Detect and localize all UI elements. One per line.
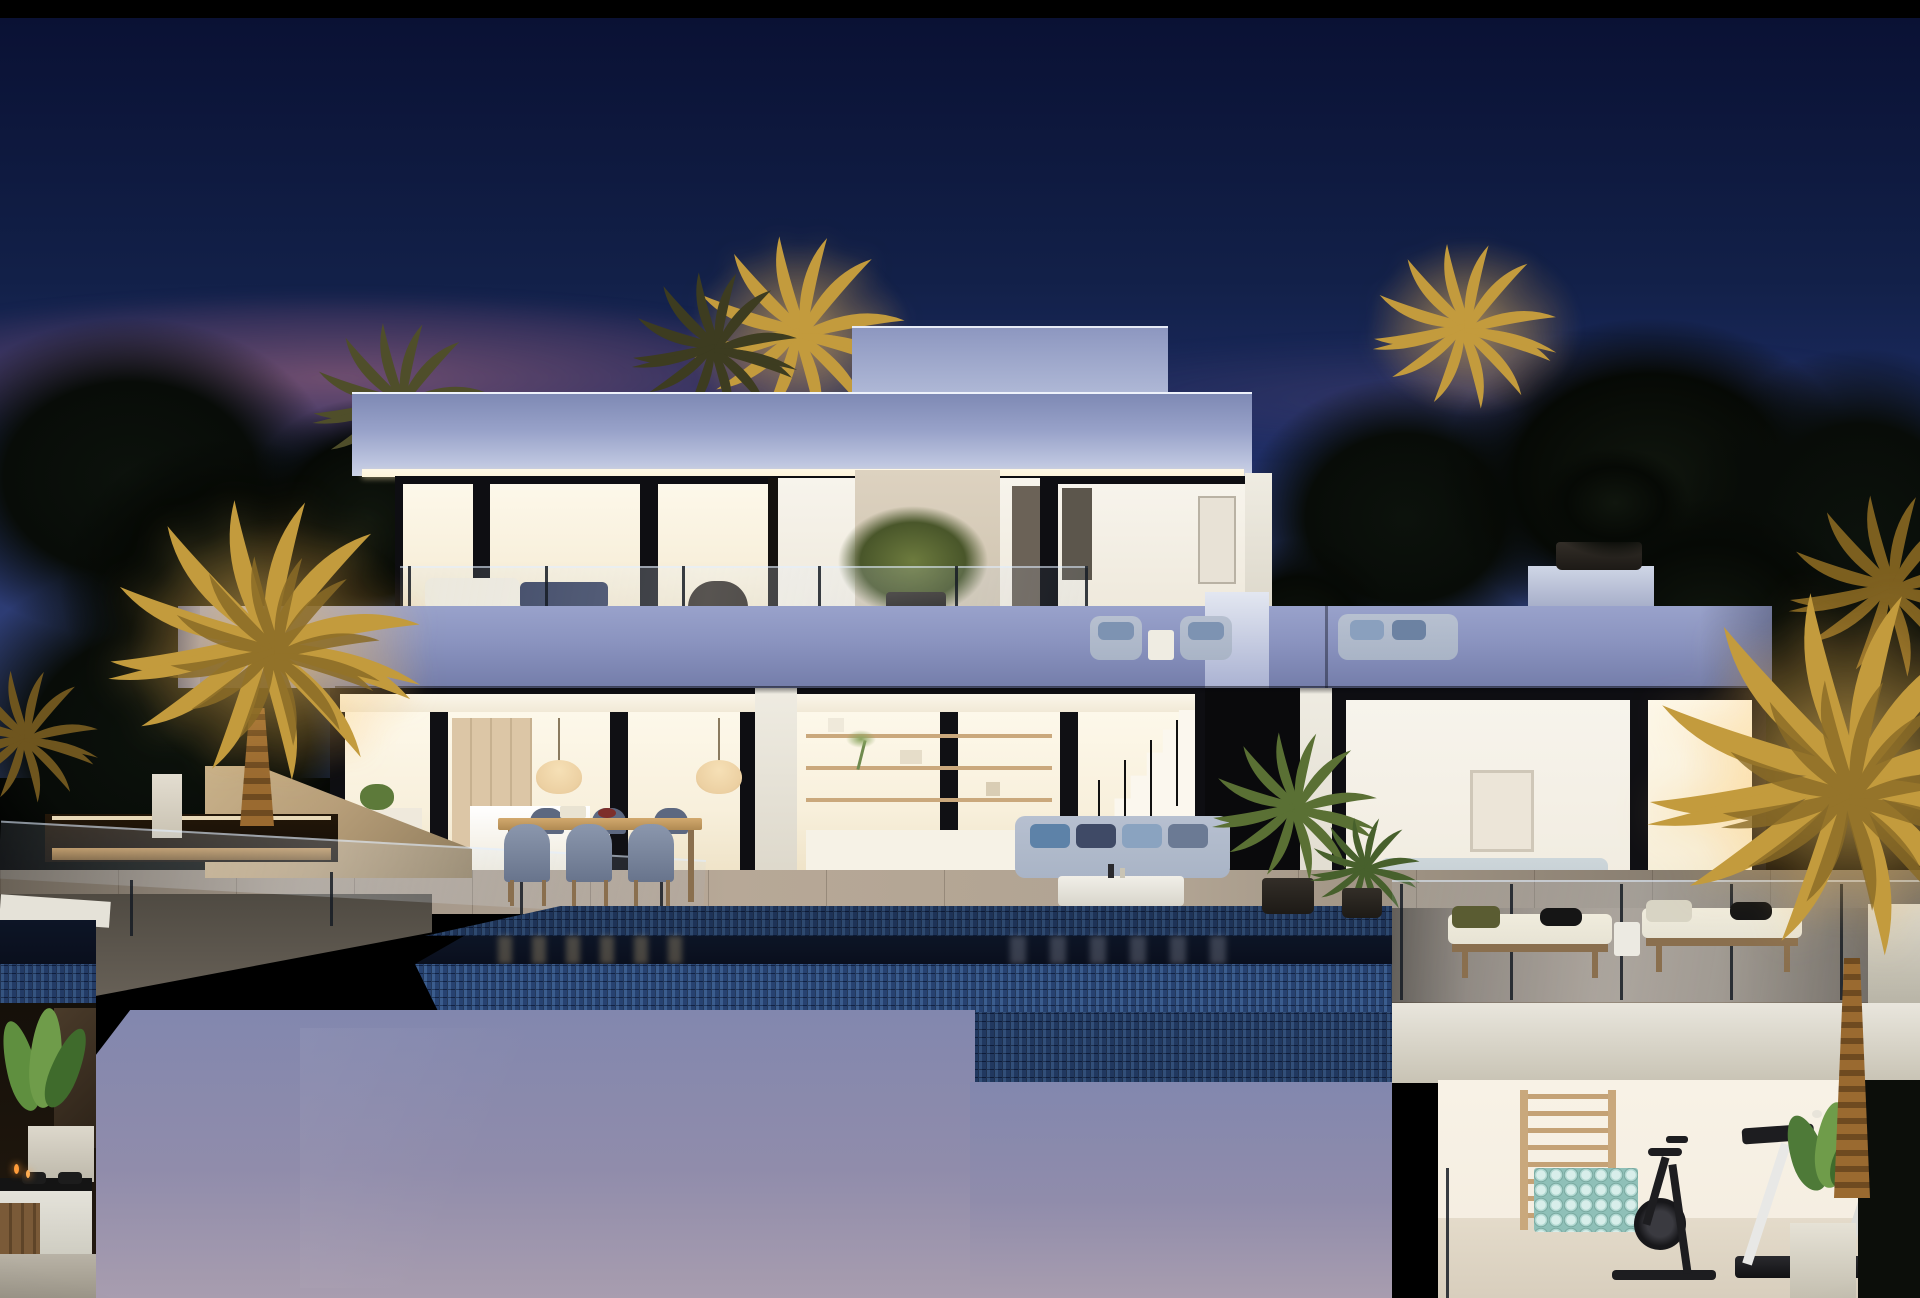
gym-planter — [1790, 1223, 1856, 1298]
balustrade-post — [818, 566, 821, 610]
bike-seat — [1666, 1136, 1688, 1143]
shelf-box — [828, 718, 844, 732]
pendant-lamp — [696, 760, 742, 794]
rolled-mats-stack — [1534, 1168, 1638, 1232]
railing-post — [330, 872, 333, 926]
lounger-pillow-olive — [1452, 906, 1500, 928]
retaining-wall-right — [970, 1082, 1392, 1298]
fruit-bowl — [598, 808, 616, 818]
bike-handlebar — [1648, 1148, 1682, 1156]
sofa-cushion — [1030, 824, 1070, 848]
pendant-lamp — [536, 760, 582, 794]
uplit-palm-right-icon — [1350, 228, 1580, 428]
mullion — [610, 712, 628, 876]
chair-leg — [542, 880, 546, 906]
jacuzzi-headrest — [58, 1172, 82, 1184]
strelitzia-flower — [1812, 1110, 1822, 1118]
armchair-cushion — [1188, 622, 1224, 640]
pool-far-mosaic-edge — [425, 906, 1392, 936]
railing-post — [1400, 884, 1403, 1000]
bike-base — [1612, 1270, 1716, 1280]
sofa-cushion-blue — [1392, 620, 1426, 640]
palm-inner-fronds-icon — [1700, 658, 1920, 938]
dining-chair — [628, 824, 674, 882]
balustrade-post — [682, 566, 685, 610]
pool-corner-mosaic-block — [970, 1012, 1392, 1086]
gym-stair-railing-post — [1446, 1168, 1449, 1298]
stair-baluster — [1176, 720, 1178, 806]
facade-column — [755, 686, 797, 876]
pendant-cord — [718, 718, 720, 764]
garden-shrub — [1540, 448, 1690, 558]
dining-chair — [504, 824, 550, 882]
rolled-towel — [1540, 908, 1582, 926]
table-glass — [1120, 868, 1125, 878]
balustrade-post — [545, 566, 548, 610]
lounger-leg — [1592, 952, 1598, 978]
sofa-cushion-blue — [1350, 620, 1384, 640]
candle-flame — [14, 1164, 19, 1174]
villa-dusk-render: Photorealistic dusk rendering of a moder… — [0, 18, 1920, 1298]
chair-leg — [510, 880, 514, 906]
shelf — [806, 766, 1052, 770]
spa-pond-water — [0, 920, 96, 964]
penthouse-volume — [852, 328, 1168, 400]
terrace-side-table — [1148, 630, 1174, 660]
roof-slab — [352, 394, 1252, 476]
dining-chair — [566, 824, 612, 882]
shelf — [806, 798, 1052, 802]
balustrade-post — [1085, 566, 1088, 610]
sofa-cushion — [1076, 824, 1116, 848]
palm-inner-fronds-icon — [150, 538, 400, 768]
upper-corner-wall — [1245, 473, 1272, 610]
shelf-books — [900, 750, 922, 764]
pool-reflection-cool — [1010, 936, 1230, 964]
wall-sheen — [300, 1028, 800, 1288]
lounger-frame — [1452, 944, 1608, 952]
bedroom-art-frame — [1198, 496, 1236, 584]
pendant-cord — [558, 718, 560, 764]
balustrade-post — [955, 566, 958, 610]
table-leg — [688, 830, 694, 902]
stair-baluster — [1150, 740, 1152, 826]
table-centerpiece — [560, 806, 586, 818]
chair-leg — [572, 880, 576, 906]
candle-flame — [26, 1170, 30, 1178]
table-bottle — [1108, 864, 1114, 878]
slab-seam — [1325, 606, 1328, 688]
bedroom-art — [1470, 770, 1534, 852]
coffee-table — [1058, 876, 1184, 906]
shelf — [806, 734, 1052, 738]
spa-floor-tiles — [0, 1254, 96, 1298]
armchair-cushion — [1098, 622, 1134, 640]
pool-reflection-warm — [498, 936, 698, 964]
sofa-cushion — [1122, 824, 1162, 848]
railing-post — [130, 880, 133, 936]
shelf-vase — [986, 782, 1000, 796]
chair-leg — [666, 880, 670, 906]
pool-near-mosaic-edge — [415, 964, 1392, 1014]
flower-spray — [846, 730, 876, 748]
lounger-leg — [1462, 952, 1468, 978]
chair-leg — [604, 880, 608, 906]
palm-pot — [1342, 888, 1382, 918]
slab-shadow — [335, 686, 1772, 694]
chair-leg — [634, 880, 638, 906]
